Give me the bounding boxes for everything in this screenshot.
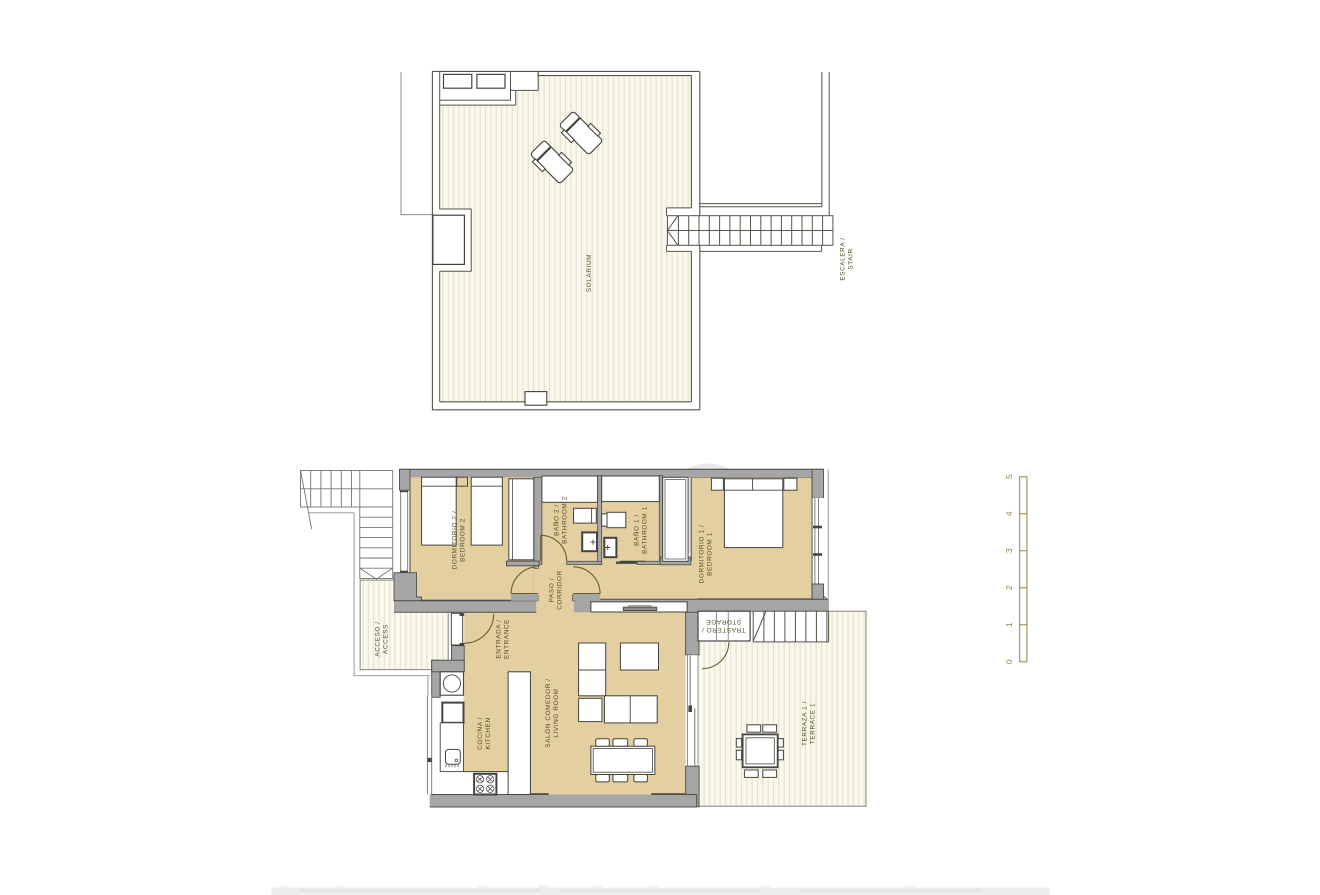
svg-text:TERRAZA 1 /: TERRAZA 1 /: [802, 701, 809, 746]
svg-text:0: 0: [1004, 659, 1014, 664]
svg-text:3: 3: [1004, 548, 1014, 553]
svg-text:BEDROOM 2: BEDROOM 2: [460, 518, 467, 562]
svg-text:CORRIDOR: CORRIDOR: [557, 570, 564, 610]
svg-text:BAÑO 1 /: BAÑO 1 /: [632, 514, 641, 546]
svg-text:ENTRADA /: ENTRADA /: [496, 619, 503, 658]
svg-text:SALÓN COMEDOR /: SALÓN COMEDOR /: [543, 678, 552, 747]
svg-text:5: 5: [1004, 474, 1014, 479]
svg-text:ESCALERA /: ESCALERA /: [840, 237, 847, 280]
svg-text:STAIR: STAIR: [848, 248, 855, 269]
svg-text:KITCHEN: KITCHEN: [485, 717, 492, 749]
svg-text:BEDROOM 1: BEDROOM 1: [707, 532, 714, 576]
svg-text:STORAGE: STORAGE: [706, 618, 741, 625]
svg-text:PASO /: PASO /: [549, 578, 556, 602]
svg-text:ENTRANCE: ENTRANCE: [504, 619, 511, 659]
svg-text:ACCESO /: ACCESO /: [375, 621, 382, 656]
svg-text:SOLARIUM: SOLARIUM: [586, 254, 593, 292]
svg-text:4: 4: [1004, 511, 1014, 516]
svg-text:BATHROOM 1: BATHROOM 1: [642, 506, 649, 554]
svg-text:DORMITORIO 1 /: DORMITORIO 1 /: [699, 525, 706, 584]
svg-text:TERRACE 1: TERRACE 1: [810, 703, 817, 744]
svg-text:COCINA /: COCINA /: [477, 717, 484, 750]
svg-text:BATHROOM 2: BATHROOM 2: [562, 496, 569, 544]
svg-text:TRASTERO /: TRASTERO /: [701, 626, 745, 633]
svg-text:ACCESS: ACCESS: [383, 624, 390, 654]
svg-text:1: 1: [1004, 622, 1014, 627]
svg-text:BAÑO 2 /: BAÑO 2 /: [552, 504, 561, 536]
svg-text:LIVING ROOM: LIVING ROOM: [553, 688, 560, 737]
svg-text:DORMITORIO 2 /: DORMITORIO 2 /: [452, 511, 459, 570]
svg-text:2: 2: [1004, 585, 1014, 590]
